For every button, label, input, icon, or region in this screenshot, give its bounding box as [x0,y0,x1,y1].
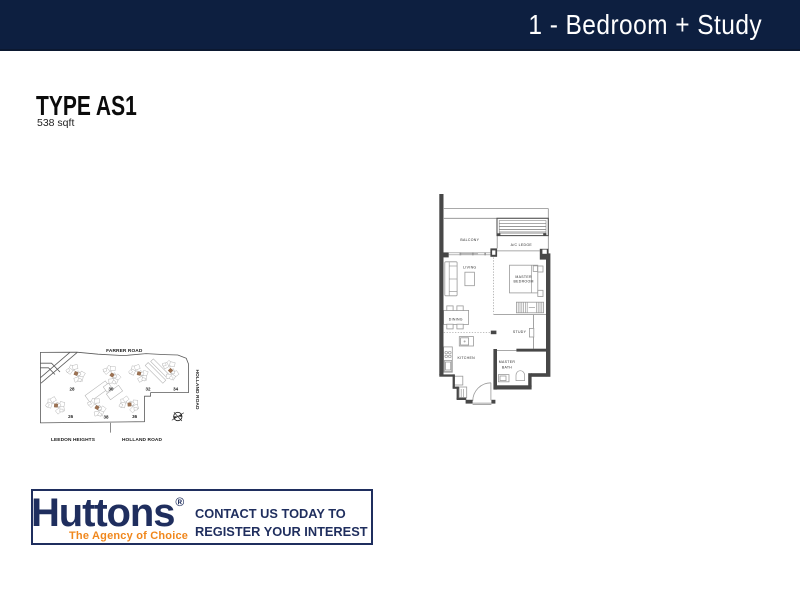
svg-text:HOLLAND ROAD: HOLLAND ROAD [194,369,200,410]
svg-text:HOLLAND ROAD: HOLLAND ROAD [122,437,163,443]
svg-text:BATH: BATH [502,366,512,370]
svg-text:LEEDON HEIGHTS: LEEDON HEIGHTS [51,437,96,443]
svg-text:26: 26 [68,414,74,419]
svg-text:FARRER ROAD: FARRER ROAD [106,348,143,354]
svg-text:32: 32 [145,386,151,391]
svg-text:BEDROOM: BEDROOM [514,279,534,283]
svg-text:MASTER: MASTER [499,360,516,364]
svg-text:MASTER: MASTER [515,275,532,279]
svg-text:36: 36 [132,414,138,419]
svg-text:KITCHEN: KITCHEN [457,356,475,360]
svg-text:A/C LEDGE: A/C LEDGE [511,243,533,247]
svg-text:38: 38 [103,415,109,420]
svg-text:LIVING: LIVING [463,265,476,269]
svg-text:30: 30 [108,386,114,391]
svg-text:BALCONY: BALCONY [460,238,479,242]
svg-text:DINING: DINING [449,317,463,321]
svg-text:28: 28 [69,386,75,391]
svg-text:STUDY: STUDY [513,330,527,334]
svg-text:34: 34 [173,386,179,391]
